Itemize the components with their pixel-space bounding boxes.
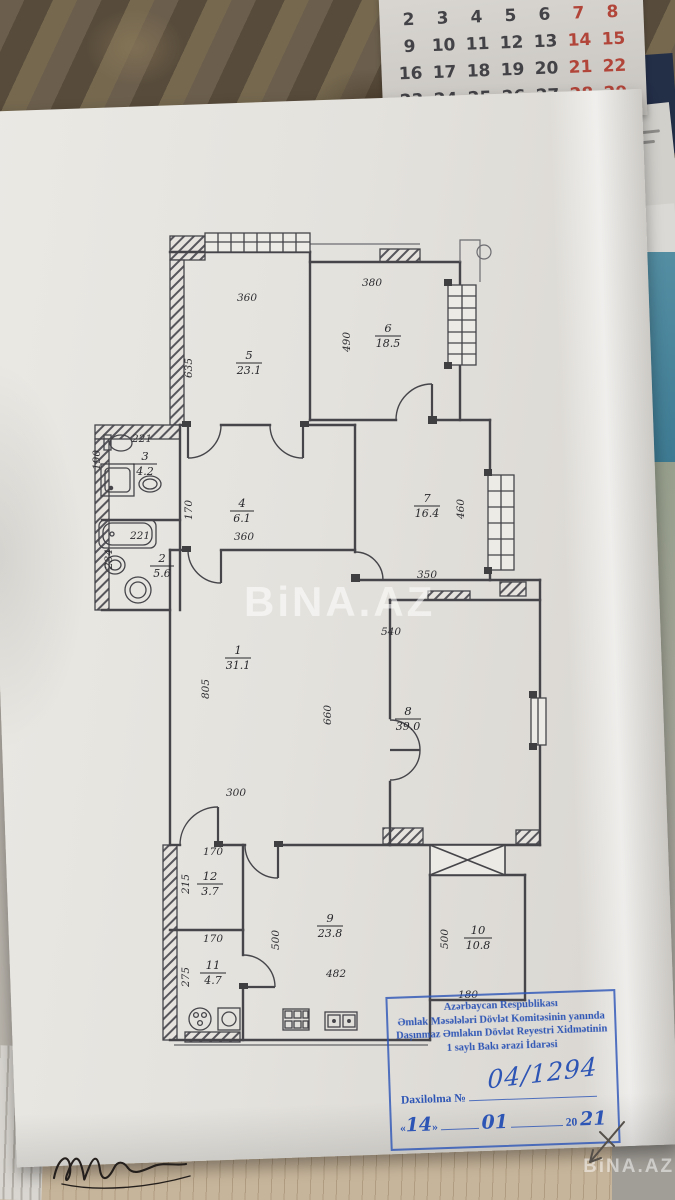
room-label-5: 5 23.1 [236, 348, 262, 377]
stamp-header: Azərbaycan Respublikası Əmlak Məsələləri… [388, 995, 616, 1057]
calendar-day: 22 [597, 55, 632, 76]
calendar-day: 4 [459, 7, 494, 28]
stamp-blank-line [511, 1113, 563, 1128]
washing-machine-icon [189, 1008, 211, 1030]
dim-rm9-left: 500 [270, 930, 282, 950]
room-label-9: 9 23.8 [317, 911, 343, 940]
stamp-quote-close: » [432, 1121, 438, 1133]
fixtures [99, 435, 357, 1030]
svg-text:4.7: 4.7 [203, 974, 222, 987]
calendar-day: 19 [495, 59, 530, 80]
window-strips [205, 233, 546, 745]
stamp-month: 01 [481, 1111, 508, 1134]
dim-rm5-top: 360 [237, 292, 257, 304]
svg-text:5.6: 5.6 [153, 567, 171, 580]
dim-rm3-left: 190 [91, 450, 103, 470]
sink-icon [139, 476, 161, 492]
dim-rm2-tub: 221 [129, 530, 150, 542]
svg-text:6.1: 6.1 [233, 512, 251, 525]
dim-rm12-top: 170 [203, 846, 223, 858]
round-sink-icon [125, 577, 151, 603]
dim-rm3-top: 221 [131, 433, 152, 445]
svg-text:7: 7 [423, 491, 431, 505]
stove-icon [283, 1009, 309, 1030]
stamp-daxilolma-label: Daxilolma № [401, 1092, 466, 1106]
svg-text:6: 6 [384, 321, 391, 335]
calendar-day: 11 [460, 34, 495, 55]
room-label-8: 8 39.0 [395, 704, 421, 733]
dim-rm4-left: 170 [183, 500, 195, 520]
dim-rm12-left: 215 [180, 874, 192, 895]
svg-text:1: 1 [234, 643, 241, 657]
room-label-4: 4 6.1 [230, 496, 254, 525]
pencil-arrow [582, 1116, 630, 1172]
calendar-day: 16 [393, 63, 428, 84]
svg-text:3.7: 3.7 [201, 885, 219, 898]
svg-text:2: 2 [157, 551, 165, 565]
calendar-day: 2 [391, 9, 426, 30]
svg-text:3: 3 [141, 449, 148, 463]
room-label-3: 3 4.2 [133, 449, 157, 478]
calendar-day: 13 [528, 31, 563, 52]
dim-rm2-left: 234 [103, 549, 115, 570]
dim-rm10-left: 500 [439, 929, 451, 949]
calendar-day: 8 [595, 2, 630, 23]
stamp-day: 14 [405, 1114, 432, 1137]
dim-rm5-left: 635 [183, 358, 195, 378]
dim-rm1-mid: 660 [322, 705, 334, 725]
svg-text:10: 10 [471, 923, 486, 937]
svg-text:4: 4 [237, 496, 245, 510]
dim-rm1-bottom: 300 [226, 787, 246, 799]
kitchen-sink-icon [325, 1012, 357, 1030]
dim-rm7-right: 460 [455, 499, 467, 520]
calendar-day: 20 [529, 58, 564, 79]
calendar-day: 10 [426, 35, 461, 56]
svg-text:12: 12 [203, 869, 218, 883]
stamp-blank-line [440, 1116, 478, 1130]
stamp-daxilolma-row: Daxilolma № [401, 1084, 597, 1107]
room-label-6: 6 18.5 [375, 321, 401, 350]
calendar-day: 17 [427, 62, 462, 83]
stamp-date-row: «14» 01 20 21 [399, 1107, 610, 1136]
svg-text:8: 8 [404, 704, 411, 718]
room-label-1: 1 31.1 [225, 643, 251, 672]
calendar-day: 9 [392, 36, 427, 57]
dim-rm6-top: 380 [362, 277, 382, 289]
calendar-day: 12 [494, 32, 529, 53]
calendar-day: 7 [561, 3, 596, 24]
svg-text:18.5: 18.5 [376, 337, 401, 350]
shaft-box [430, 845, 505, 875]
svg-text:10.8: 10.8 [466, 939, 491, 952]
calendar-day: 3 [425, 8, 460, 29]
room-label-10: 10 10.8 [464, 923, 492, 952]
threshold-marks [182, 416, 437, 989]
svg-text:4.2: 4.2 [135, 465, 154, 478]
svg-text:9: 9 [326, 911, 333, 925]
dim-rm11-top: 170 [203, 933, 223, 945]
dim-rm1-left: 805 [200, 679, 212, 699]
signature [48, 1142, 204, 1196]
calendar-day: 6 [527, 4, 562, 25]
room-label-11: 11 4.7 [200, 958, 226, 987]
svg-text:31.1: 31.1 [226, 659, 251, 672]
dim-rm4-bottom: 360 [234, 531, 254, 543]
room-label-7: 7 16.4 [414, 491, 440, 520]
calendar-day: 21 [563, 57, 598, 78]
svg-text:11: 11 [206, 958, 221, 972]
svg-text:39.0: 39.0 [396, 720, 421, 733]
calendar-day: 15 [596, 28, 631, 49]
appliance-icon [218, 1008, 240, 1030]
dim-rm6-left: 490 [341, 332, 353, 353]
watermark-center: BiNA.AZ [244, 578, 435, 626]
stamp-year-prefix: 20 [566, 1116, 578, 1128]
photo-of-floorplan-document: { "calendar": { "weeks": [ [{"t":"2","r"… [0, 0, 675, 1200]
calendar-day: 5 [493, 5, 528, 26]
svg-text:5: 5 [245, 348, 252, 362]
dim-rm9-bottom: 482 [325, 968, 346, 980]
dim-rm11-left: 275 [180, 967, 192, 988]
svg-text:16.4: 16.4 [415, 507, 440, 520]
dim-rm8-top: 540 [381, 626, 401, 638]
calendar-day: 18 [461, 61, 496, 82]
svg-text:23.8: 23.8 [317, 927, 343, 940]
calendar-day: 14 [562, 30, 597, 51]
floor-plan: 5 23.1 6 18.5 3 4.2 2 5.6 4 [88, 222, 548, 1052]
room-label-12: 12 3.7 [197, 869, 223, 898]
svg-text:23.1: 23.1 [236, 364, 262, 377]
